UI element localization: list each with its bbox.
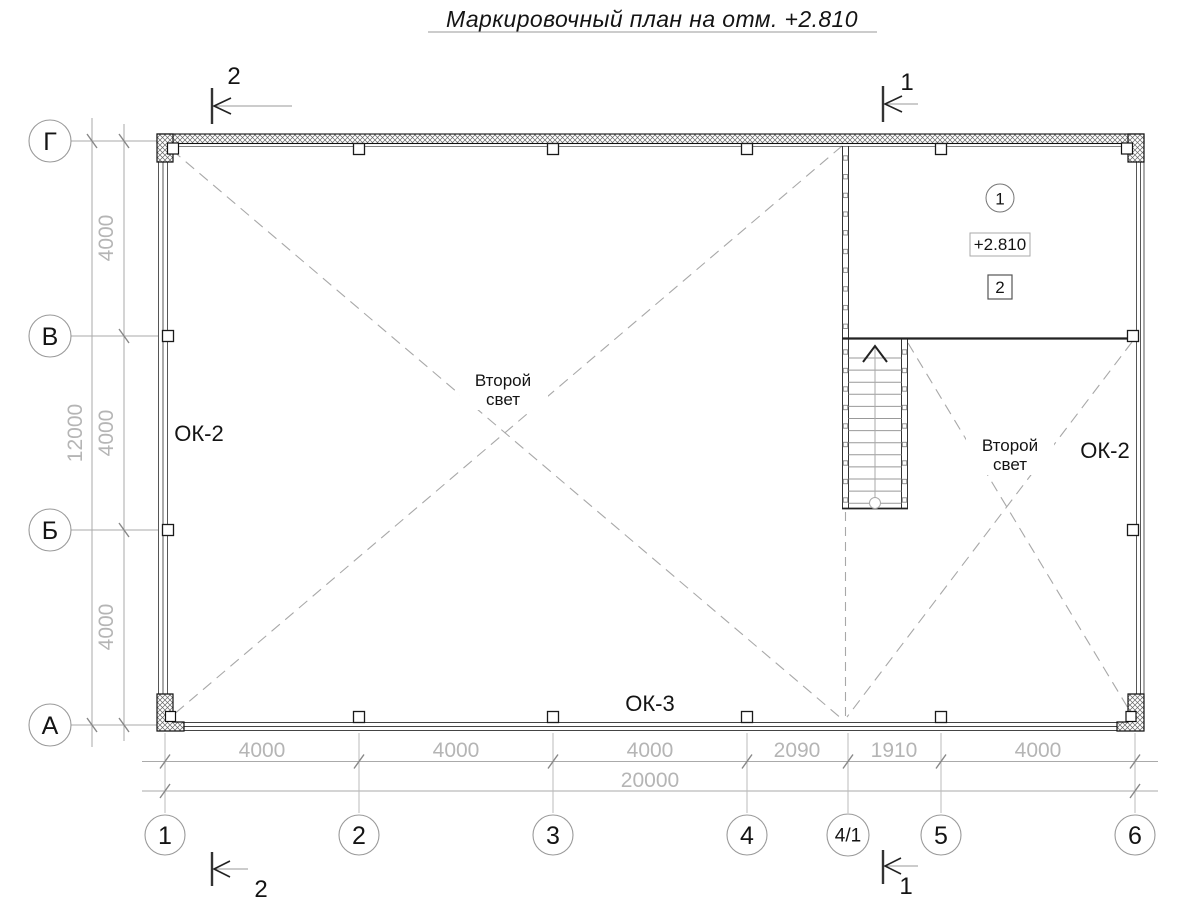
wall-stud-dot xyxy=(843,268,847,272)
wall-type-mark: 2 xyxy=(995,278,1004,297)
void-left-diagonal-2 xyxy=(172,146,842,716)
section-mark-1-top: 1 xyxy=(883,69,918,122)
void-right-label-line2: свет xyxy=(993,455,1027,474)
wall-column-square xyxy=(936,144,947,155)
dim-col-seg-2: 4000 xyxy=(433,739,480,762)
marking-plan-drawing: Маркировочный план на отм. +2.810 xyxy=(0,0,1200,900)
wall-stud-dot xyxy=(843,387,847,391)
wall-stud-dot xyxy=(843,405,847,409)
wall-stud-dot xyxy=(843,424,847,428)
wall-column-square xyxy=(1128,525,1139,536)
mezzanine-room-marks: 1 +2.810 2 xyxy=(970,184,1030,299)
floor-plan-sheet: Маркировочный план на отм. +2.810 xyxy=(0,0,1200,900)
wall-stud-dot xyxy=(902,479,906,483)
wall-column-square xyxy=(548,712,559,723)
stair-start-circle xyxy=(870,498,881,509)
staircase xyxy=(842,339,1136,509)
wall-stud-dot xyxy=(843,442,847,446)
section-number-1-top: 1 xyxy=(900,69,913,96)
col-label-1: 1 xyxy=(158,822,172,850)
wall-stud-dot xyxy=(902,498,906,502)
page-title: Маркировочный план на отм. +2.810 xyxy=(446,6,858,32)
top-wall-hatched-band xyxy=(157,134,1144,144)
elevation-mark: +2.810 xyxy=(974,235,1026,254)
wall-column-square xyxy=(354,712,365,723)
wall-column-square xyxy=(354,144,365,155)
wall-stud-dot xyxy=(902,424,906,428)
room-number: 1 xyxy=(995,190,1004,209)
section-number-2-bottom: 2 xyxy=(254,876,267,900)
wall-stud-dot xyxy=(843,305,847,309)
wall-stud-dot xyxy=(902,368,906,372)
window-mark-bottom: ОК-3 xyxy=(625,691,675,716)
col-label-3: 3 xyxy=(546,822,560,850)
drawing-title: Маркировочный план на отм. +2.810 xyxy=(428,6,877,32)
corner-notch-top-right xyxy=(1122,143,1133,154)
dim-col-seg-6: 4000 xyxy=(1015,739,1062,762)
col-label-2: 2 xyxy=(352,822,366,850)
wall-stud-dot xyxy=(843,498,847,502)
plan-labels: Второй свет Второй свет ОК-2 ОК-2 ОК-3 xyxy=(174,368,1130,716)
void-right-diagonal-1 xyxy=(908,343,1131,713)
section-number-2-top: 2 xyxy=(227,63,240,90)
wall-stud-dot xyxy=(902,387,906,391)
vertical-dimension-texts: 4000 4000 4000 12000 xyxy=(64,215,118,651)
dim-col-seg-1: 4000 xyxy=(239,739,286,762)
wall-column-square xyxy=(548,144,559,155)
dim-col-seg-4: 2090 xyxy=(774,739,821,762)
wall-stud-dot xyxy=(902,350,906,354)
wall-stud-dot xyxy=(843,175,847,179)
wall-stud-dot xyxy=(843,287,847,291)
section-mark-1-bottom: 1 xyxy=(883,850,918,900)
wall-stud-dot xyxy=(843,156,847,160)
wall-column-square xyxy=(742,144,753,155)
wall-stud-dot xyxy=(902,442,906,446)
window-mark-right: ОК-2 xyxy=(1080,438,1130,463)
section-marks: 2 1 2 1 xyxy=(212,63,918,900)
wall-stud-dot xyxy=(843,461,847,465)
row-label-g: Г xyxy=(43,128,57,156)
wall-stud-dot xyxy=(843,324,847,328)
section-number-1-bottom: 1 xyxy=(899,873,912,900)
dim-row-seg-3: 4000 xyxy=(95,604,118,651)
wall-stud-dot xyxy=(843,249,847,253)
dim-col-seg-5: 1910 xyxy=(871,739,918,762)
wall-column-square xyxy=(163,525,174,536)
column-axis-bubbles: 1 2 3 4 4/1 5 6 xyxy=(145,814,1155,856)
wall-column-square xyxy=(1128,331,1139,342)
dim-row-seg-1: 4000 xyxy=(95,215,118,262)
col-label-5: 5 xyxy=(934,822,948,850)
void-right-diagonal-2 xyxy=(847,342,1132,717)
wall-stud-dot xyxy=(843,479,847,483)
hatched-wall-elements xyxy=(157,134,1144,731)
wall-stud-dot xyxy=(843,212,847,216)
dim-cols-total: 20000 xyxy=(621,769,679,792)
wall-stud-dot xyxy=(843,368,847,372)
section-mark-2-bottom: 2 xyxy=(212,852,268,900)
dim-col-seg-3: 4000 xyxy=(627,739,674,762)
wall-stud-dot xyxy=(843,350,847,354)
window-mark-left: ОК-2 xyxy=(174,421,224,446)
corner-notch-bottom-left xyxy=(166,712,176,722)
wall-column-square xyxy=(936,712,947,723)
col-label-4-1: 4/1 xyxy=(835,826,861,847)
void-right-label-line1: Второй xyxy=(982,436,1038,455)
section-mark-2-top: 2 xyxy=(212,63,292,124)
void-left-label-line2: свет xyxy=(486,390,520,409)
wall-stud-dot xyxy=(902,405,906,409)
row-label-b: Б xyxy=(42,517,58,545)
void-left-label-line1: Второй xyxy=(475,371,531,390)
corner-notch-bottom-right xyxy=(1126,712,1136,722)
void-left-diagonal-1 xyxy=(172,150,842,719)
wall-column-square xyxy=(163,331,174,342)
row-label-v: В xyxy=(42,323,59,351)
wall-stud-dot xyxy=(843,231,847,235)
col-label-4: 4 xyxy=(740,822,754,850)
corner-notch-top-left xyxy=(168,143,179,154)
row-label-a: А xyxy=(42,712,59,740)
dim-rows-total: 12000 xyxy=(64,404,87,462)
wall-column-square xyxy=(742,712,753,723)
void-diagonals xyxy=(172,146,1132,719)
col-label-6: 6 xyxy=(1128,822,1142,850)
dim-row-seg-2: 4000 xyxy=(95,410,118,457)
wall-stud-dot xyxy=(902,461,906,465)
wall-stud-dot xyxy=(843,193,847,197)
